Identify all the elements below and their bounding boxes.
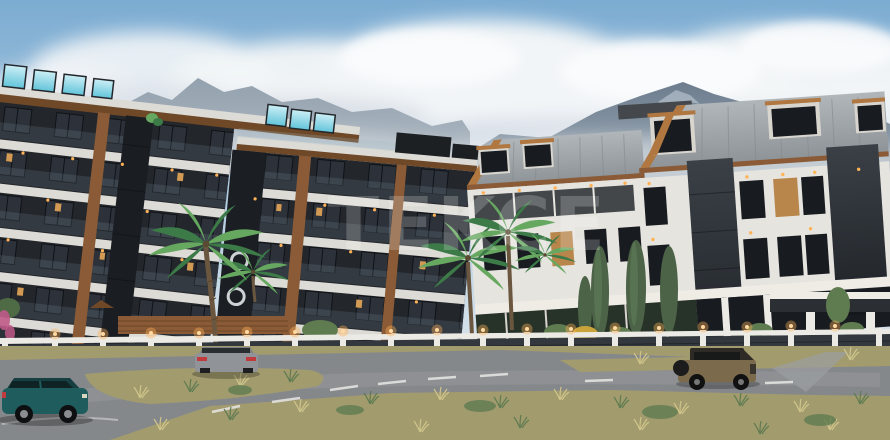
scene-canvas xyxy=(0,0,890,440)
slate-column xyxy=(826,144,887,287)
ground xyxy=(0,346,890,440)
car-gray xyxy=(192,347,260,379)
render-image: TEKCE xyxy=(0,0,890,440)
spare-tire xyxy=(673,360,689,376)
